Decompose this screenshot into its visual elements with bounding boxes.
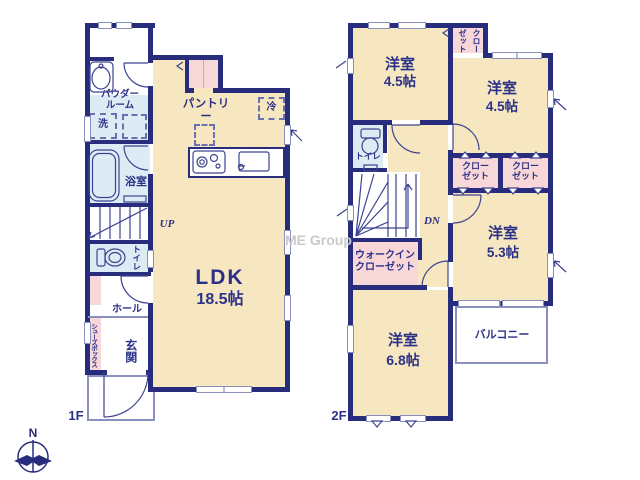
- window: [116, 22, 132, 29]
- floor1-label: 1F: [64, 409, 88, 424]
- walk-in-closet-label: ウォークイン クローゼット: [350, 250, 420, 273]
- bedroom-c-size: 5.3帖: [478, 245, 528, 261]
- wall: [185, 88, 194, 93]
- wall: [85, 370, 107, 375]
- stairs2-area: [353, 172, 420, 238]
- stairs-down-label: DN: [420, 215, 444, 228]
- bedroom-d-size: 6.8帖: [378, 352, 428, 368]
- bathroom-area: [88, 144, 150, 203]
- window: [547, 90, 554, 108]
- window: [284, 295, 291, 321]
- pantry-label: パントリー: [178, 98, 234, 124]
- closet-b-label: クロー ゼット: [503, 161, 548, 182]
- toilet1-label: トイレ: [131, 243, 141, 273]
- window: [398, 22, 426, 29]
- vent-arrow: [554, 99, 566, 110]
- wall: [85, 240, 151, 244]
- wall: [348, 238, 422, 242]
- closet-top-label: クロー ゼット: [455, 29, 483, 53]
- wall: [146, 370, 153, 375]
- vent-arrow: [291, 130, 302, 141]
- island-dotted-box: [194, 124, 215, 146]
- wall: [218, 88, 290, 93]
- wall: [85, 272, 151, 276]
- wall: [348, 285, 427, 290]
- bedroom-a-label: 洋室: [375, 56, 425, 73]
- sliding-window: [492, 52, 542, 59]
- window: [347, 58, 354, 74]
- bedroom-b-size: 4.5帖: [477, 99, 527, 115]
- window: [284, 125, 291, 145]
- wall: [348, 168, 387, 172]
- wall: [85, 140, 151, 144]
- window: [547, 253, 554, 278]
- vent-arrow: [554, 261, 566, 272]
- floorplan-canvas: パウダー ルーム 洗 浴室 UP トイレ ホール シューズボックス 玄関 LDK…: [0, 0, 640, 480]
- powder-room-label: パウダー ルーム: [95, 90, 145, 112]
- ldk-label: LDK: [180, 266, 260, 290]
- vent-arrow: [337, 209, 347, 216]
- stairs-up-label: UP: [155, 218, 179, 231]
- bath-label: 浴室: [120, 176, 152, 189]
- sliding-window: [458, 300, 500, 307]
- bedroom-b-label: 洋室: [477, 80, 527, 97]
- porch-area: [87, 375, 155, 421]
- bedroom-a-size: 4.5帖: [375, 74, 425, 90]
- hall-entrance-line: [88, 316, 148, 318]
- compass-icon: N: [8, 424, 60, 478]
- wall: [185, 55, 222, 60]
- window: [347, 205, 354, 221]
- bedroom-c-label: 洋室: [480, 225, 526, 242]
- sliding-window: [196, 386, 252, 393]
- window: [347, 325, 354, 353]
- window: [366, 415, 391, 422]
- wall: [448, 28, 453, 125]
- ldk-size-label: 18.5帖: [180, 291, 260, 309]
- laundry-label: 洗: [89, 119, 117, 131]
- wash-basin-icon: [90, 62, 113, 92]
- window: [368, 22, 390, 29]
- wall: [420, 120, 453, 125]
- ldk-area-right: [222, 93, 285, 387]
- entrance-label: 玄関: [123, 334, 137, 368]
- window: [400, 415, 426, 422]
- wall: [148, 55, 190, 60]
- kitchen-counter: [188, 147, 285, 178]
- vent-arrow: [336, 61, 346, 68]
- closet-a-label: クロー ゼット: [453, 161, 498, 182]
- floor2-label: 2F: [328, 409, 350, 424]
- wall: [383, 125, 387, 153]
- wall: [448, 188, 553, 193]
- stairs-up-icon: [89, 207, 147, 239]
- wall: [88, 57, 114, 61]
- sliding-window: [502, 300, 544, 307]
- pantry-divider: [203, 60, 204, 88]
- hall-label: ホール: [106, 304, 148, 316]
- window: [98, 22, 112, 29]
- wall: [85, 203, 151, 207]
- dotted-box: [122, 114, 147, 139]
- fridge-label: 冷: [258, 102, 285, 114]
- wall: [348, 23, 353, 421]
- wall: [148, 86, 153, 144]
- toilet-door: [147, 250, 154, 268]
- bedroom-d-label: 洋室: [378, 332, 428, 349]
- balcony-label: バルコニー: [468, 329, 536, 342]
- watermark: ME Group: [285, 232, 352, 248]
- shoe-box-label: シューズボックス: [89, 320, 96, 370]
- wall: [448, 223, 453, 262]
- toilet2-label: トイレ: [354, 152, 382, 162]
- compass-north-label: N: [29, 426, 38, 440]
- wall: [448, 287, 453, 421]
- wall: [148, 303, 153, 389]
